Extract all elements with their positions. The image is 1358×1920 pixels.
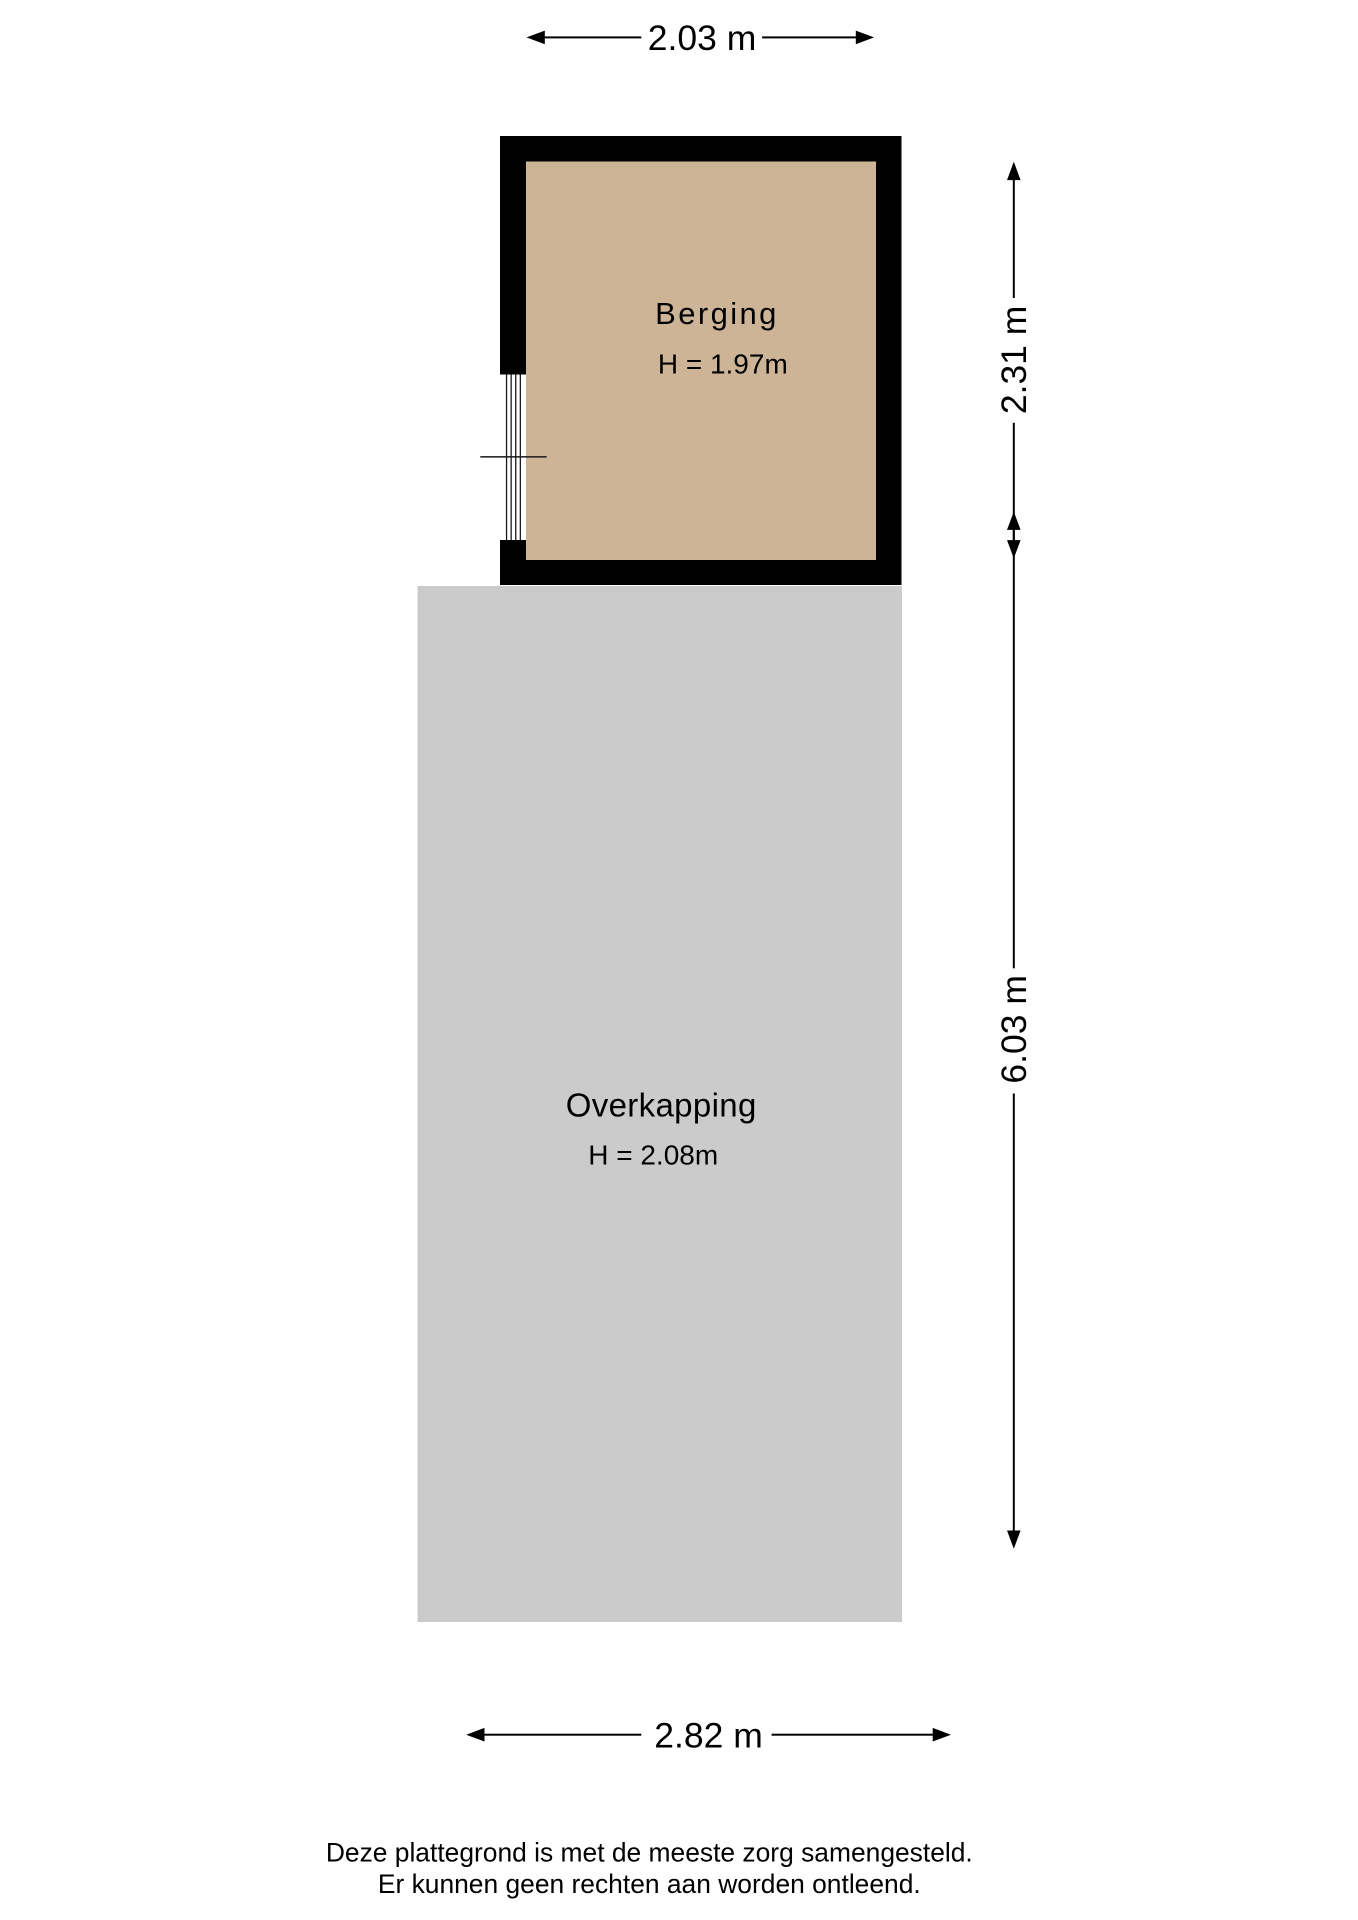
svg-text:2.03 m: 2.03 m — [648, 18, 757, 58]
svg-text:Er kunnen geen rechten aan wor: Er kunnen geen rechten aan worden ontlee… — [378, 1869, 921, 1899]
svg-text:H = 1.97m: H = 1.97m — [658, 348, 788, 379]
svg-text:H = 2.08m: H = 2.08m — [588, 1139, 718, 1170]
svg-text:Deze plattegrond is met de mee: Deze plattegrond is met de meeste zorg s… — [326, 1837, 973, 1867]
svg-text:Overkapping: Overkapping — [566, 1086, 757, 1123]
svg-text:2.82 m: 2.82 m — [654, 1716, 763, 1756]
svg-text:6.03 m: 6.03 m — [994, 975, 1034, 1084]
svg-text:2.31 m: 2.31 m — [994, 306, 1034, 415]
svg-text:Berging: Berging — [655, 296, 779, 331]
